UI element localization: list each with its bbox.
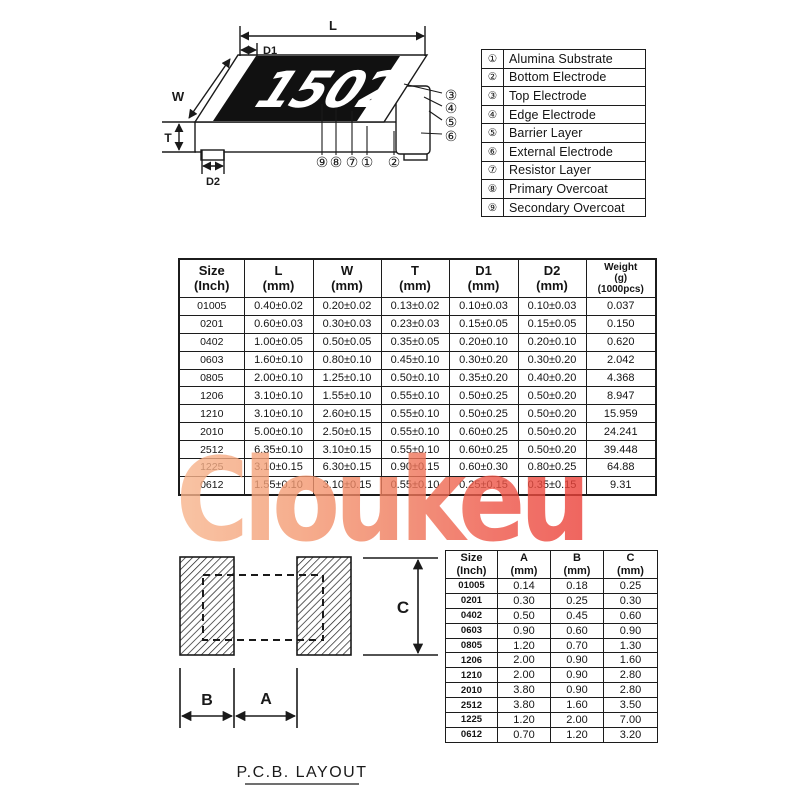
col-header-l: L(mm) (244, 259, 313, 298)
cell-d1: 0.15±0.05 (449, 315, 518, 333)
col-header-d1: D1(mm) (449, 259, 518, 298)
cell-t: 0.50±0.10 (381, 369, 449, 387)
legend-row: ⑦ Resistor Layer (482, 161, 646, 180)
cell-weight: 0.037 (586, 298, 656, 316)
cell-l: 5.00±0.10 (244, 423, 313, 441)
cell-size: 1225 (446, 713, 498, 728)
pad-table-row: 01005 0.14 0.18 0.25 (446, 579, 658, 594)
pad-table-row: 1206 2.00 0.90 1.60 (446, 653, 658, 668)
cell-size: 1210 (446, 668, 498, 683)
pcb-dim-label-c: C (397, 598, 409, 617)
legend-number: ⑦ (482, 161, 504, 180)
dimensions-table-row: 1225 3.10±0.15 6.30±0.15 0.90±0.15 0.60±… (179, 459, 656, 477)
legend-label: Secondary Overcoat (504, 198, 646, 217)
col-header-c: C(mm) (604, 551, 658, 579)
legend-label: Barrier Layer (504, 124, 646, 143)
cell-c: 0.25 (604, 579, 658, 594)
cell-a: 3.80 (498, 698, 551, 713)
cell-size: 0805 (179, 369, 244, 387)
cell-w: 0.80±0.10 (313, 351, 381, 369)
cell-size: 0201 (446, 593, 498, 608)
pad-table-row: 2010 3.80 0.90 2.80 (446, 683, 658, 698)
dimensions-table-row: 2010 5.00±0.10 2.50±0.15 0.55±0.10 0.60±… (179, 423, 656, 441)
pcb-dim-label-b: B (201, 692, 213, 709)
cell-b: 1.60 (551, 698, 604, 713)
cell-d1: 0.10±0.03 (449, 298, 518, 316)
pad-table-row: 1210 2.00 0.90 2.80 (446, 668, 658, 683)
cell-l: 1.55±0.10 (244, 476, 313, 494)
cell-t: 0.35±0.05 (381, 333, 449, 351)
cell-d2: 0.35±0.15 (518, 476, 586, 494)
cell-t: 0.90±0.15 (381, 459, 449, 477)
callout-5-barrier-layer: ⑤ (445, 114, 458, 130)
cell-weight: 8.947 (586, 387, 656, 405)
cell-d2: 0.40±0.20 (518, 369, 586, 387)
cell-d1: 0.30±0.20 (449, 351, 518, 369)
cell-b: 1.20 (551, 727, 604, 742)
cell-d2: 0.30±0.20 (518, 351, 586, 369)
cell-t: 0.55±0.10 (381, 405, 449, 423)
callout-7-resistor-layer: ⑦ (346, 154, 359, 170)
cell-c: 7.00 (604, 713, 658, 728)
cell-c: 2.80 (604, 668, 658, 683)
legend-row: ⑤ Barrier Layer (482, 124, 646, 143)
layer-legend-table: ① Alumina Substrate ② Bottom Electrode ③… (481, 49, 646, 217)
dimensions-table-row: 1210 3.10±0.10 2.60±0.15 0.55±0.10 0.50±… (179, 405, 656, 423)
cell-l: 1.60±0.10 (244, 351, 313, 369)
cell-w: 0.30±0.03 (313, 315, 381, 333)
chip-left-foot (201, 150, 224, 160)
cell-size: 2512 (179, 441, 244, 459)
cell-size: 0201 (179, 315, 244, 333)
cell-a: 0.30 (498, 593, 551, 608)
pad-table-header-row: Size(Inch) A(mm) B(mm) C(mm) (446, 551, 658, 579)
cell-l: 6.35±0.10 (244, 441, 313, 459)
cell-size: 2010 (446, 683, 498, 698)
cell-c: 3.20 (604, 727, 658, 742)
callout-9-secondary-overcoat: ⑨ (316, 154, 329, 170)
cell-size: 01005 (179, 298, 244, 316)
cell-l: 0.40±0.02 (244, 298, 313, 316)
cell-l: 2.00±0.10 (244, 369, 313, 387)
cell-l: 3.10±0.15 (244, 459, 313, 477)
cell-weight: 4.368 (586, 369, 656, 387)
dimensions-table-row: 0402 1.00±0.05 0.50±0.05 0.35±0.05 0.20±… (179, 333, 656, 351)
cell-t: 0.55±0.10 (381, 387, 449, 405)
chip-overcoat-face (213, 56, 400, 121)
callout-6-external-electrode: ⑥ (445, 128, 458, 144)
pcb-caption: P.C.B. LAYOUT (237, 764, 368, 781)
cell-c: 1.30 (604, 638, 658, 653)
cell-size: 2512 (446, 698, 498, 713)
cell-d2: 0.80±0.25 (518, 459, 586, 477)
pad-table-row: 0805 1.20 0.70 1.30 (446, 638, 658, 653)
legend-row: ① Alumina Substrate (482, 50, 646, 69)
dimensions-table-row: 0612 1.55±0.10 3.10±0.15 0.55±0.10 0.25±… (179, 476, 656, 494)
legend-number: ④ (482, 105, 504, 124)
cell-d1: 0.20±0.10 (449, 333, 518, 351)
legend-label: External Electrode (504, 142, 646, 161)
pcb-layout-diagram: C B A P.C.B. LAYOUT (180, 557, 438, 784)
cell-c: 3.50 (604, 698, 658, 713)
cell-a: 2.00 (498, 668, 551, 683)
dimensions-table-row: 01005 0.40±0.02 0.20±0.02 0.13±0.02 0.10… (179, 298, 656, 316)
col-header-size: Size(Inch) (446, 551, 498, 579)
legend-row: ⑥ External Electrode (482, 142, 646, 161)
cell-t: 0.55±0.10 (381, 441, 449, 459)
cell-t: 0.23±0.03 (381, 315, 449, 333)
callout-3-top-electrode: ③ (445, 87, 458, 103)
cell-b: 0.90 (551, 683, 604, 698)
cell-a: 2.00 (498, 653, 551, 668)
cell-a: 3.80 (498, 683, 551, 698)
pcb-footprint-outline (203, 575, 323, 640)
cell-a: 1.20 (498, 713, 551, 728)
dimensions-table-header-row: Size(Inch) L(mm) W(mm) T(mm) D1(mm) D2(m… (179, 259, 656, 298)
cell-l: 1.00±0.05 (244, 333, 313, 351)
legend-number: ⑧ (482, 180, 504, 199)
col-header-a: A(mm) (498, 551, 551, 579)
cell-d1: 0.60±0.25 (449, 423, 518, 441)
cell-weight: 24.241 (586, 423, 656, 441)
cell-l: 3.10±0.10 (244, 405, 313, 423)
cell-size: 1225 (179, 459, 244, 477)
cell-b: 0.18 (551, 579, 604, 594)
cell-size: 2010 (179, 423, 244, 441)
cell-d1: 0.60±0.25 (449, 441, 518, 459)
cell-l: 0.60±0.03 (244, 315, 313, 333)
cell-size: 1206 (446, 653, 498, 668)
col-header-t: T(mm) (381, 259, 449, 298)
dim-label-d2: D2 (206, 176, 220, 188)
legend-label: Edge Electrode (504, 105, 646, 124)
cell-c: 2.80 (604, 683, 658, 698)
cell-b: 0.60 (551, 623, 604, 638)
chip-top-face (195, 55, 427, 122)
cell-b: 2.00 (551, 713, 604, 728)
callout-1-alumina-substrate: ① (361, 154, 374, 170)
cell-size: 0402 (446, 608, 498, 623)
cell-w: 3.10±0.15 (313, 476, 381, 494)
dim-label-w: W (172, 89, 185, 104)
pcb-pad-left (180, 557, 234, 655)
chip-end-electrode (396, 86, 430, 154)
cell-a: 0.90 (498, 623, 551, 638)
pad-table-row: 0402 0.50 0.45 0.60 (446, 608, 658, 623)
cell-c: 0.60 (604, 608, 658, 623)
chip-body (195, 122, 428, 152)
cell-weight: 64.88 (586, 459, 656, 477)
cell-size: 1206 (179, 387, 244, 405)
cell-weight: 39.448 (586, 441, 656, 459)
callout-2-bottom-electrode: ② (388, 154, 401, 170)
legend-label: Top Electrode (504, 87, 646, 106)
cell-c: 0.90 (604, 623, 658, 638)
cell-d1: 0.60±0.30 (449, 459, 518, 477)
legend-label: Alumina Substrate (504, 50, 646, 69)
dim-label-l: L (329, 18, 337, 33)
legend-number: ⑥ (482, 142, 504, 161)
cell-b: 0.90 (551, 668, 604, 683)
cell-b: 0.90 (551, 653, 604, 668)
pad-table-row: 2512 3.80 1.60 3.50 (446, 698, 658, 713)
cell-c: 1.60 (604, 653, 658, 668)
legend-row: ② Bottom Electrode (482, 68, 646, 87)
cell-b: 0.45 (551, 608, 604, 623)
dimensions-table-row: 2512 6.35±0.10 3.10±0.15 0.55±0.10 0.60±… (179, 441, 656, 459)
cell-size: 0402 (179, 333, 244, 351)
pcb-dim-label-a: A (260, 691, 272, 708)
cell-t: 0.55±0.10 (381, 423, 449, 441)
col-header-size: Size(Inch) (179, 259, 244, 298)
cell-a: 0.70 (498, 727, 551, 742)
resistor-marking: 1502 (241, 61, 414, 119)
pad-table-row: 1225 1.20 2.00 7.00 (446, 713, 658, 728)
legend-label: Primary Overcoat (504, 180, 646, 199)
col-header-b: B(mm) (551, 551, 604, 579)
cell-l: 3.10±0.10 (244, 387, 313, 405)
legend-row: ⑨ Secondary Overcoat (482, 198, 646, 217)
legend-number: ① (482, 50, 504, 69)
cell-t: 0.13±0.02 (381, 298, 449, 316)
legend-number: ③ (482, 87, 504, 106)
pcb-pad-right (297, 557, 351, 655)
cell-weight: 15.959 (586, 405, 656, 423)
legend-label: Resistor Layer (504, 161, 646, 180)
cell-weight: 0.150 (586, 315, 656, 333)
cell-d2: 0.50±0.20 (518, 405, 586, 423)
cell-weight: 0.620 (586, 333, 656, 351)
cell-d2: 0.15±0.05 (518, 315, 586, 333)
dimensions-table: Size(Inch) L(mm) W(mm) T(mm) D1(mm) D2(m… (178, 258, 657, 496)
cell-size: 0805 (446, 638, 498, 653)
dimensions-table-row: 0805 2.00±0.10 1.25±0.10 0.50±0.10 0.35±… (179, 369, 656, 387)
cell-t: 0.55±0.10 (381, 476, 449, 494)
cell-w: 3.10±0.15 (313, 441, 381, 459)
pad-table-row: 0201 0.30 0.25 0.30 (446, 593, 658, 608)
cell-size: 0612 (179, 476, 244, 494)
legend-row: ③ Top Electrode (482, 87, 646, 106)
cell-a: 0.14 (498, 579, 551, 594)
resistor-construction-diagram: 1502 L D1 W T D2 ③ ④ ⑤ (162, 18, 457, 188)
cell-d1: 0.25±0.15 (449, 476, 518, 494)
cell-a: 0.50 (498, 608, 551, 623)
cell-c: 0.30 (604, 593, 658, 608)
legend-row: ④ Edge Electrode (482, 105, 646, 124)
cell-weight: 2.042 (586, 351, 656, 369)
cell-weight: 9.31 (586, 476, 656, 494)
cell-b: 0.25 (551, 593, 604, 608)
pad-dimensions-table: Size(Inch) A(mm) B(mm) C(mm) 01005 0.14 … (445, 550, 658, 743)
cell-w: 1.25±0.10 (313, 369, 381, 387)
cell-a: 1.20 (498, 638, 551, 653)
cell-w: 0.50±0.05 (313, 333, 381, 351)
cell-w: 1.55±0.10 (313, 387, 381, 405)
cell-size: 1210 (179, 405, 244, 423)
cell-d2: 0.50±0.20 (518, 423, 586, 441)
legend-row: ⑧ Primary Overcoat (482, 180, 646, 199)
dimensions-table-row: 1206 3.10±0.10 1.55±0.10 0.55±0.10 0.50±… (179, 387, 656, 405)
cell-w: 0.20±0.02 (313, 298, 381, 316)
dimensions-table-row: 0201 0.60±0.03 0.30±0.03 0.23±0.03 0.15±… (179, 315, 656, 333)
cell-w: 2.50±0.15 (313, 423, 381, 441)
cell-w: 6.30±0.15 (313, 459, 381, 477)
cell-d1: 0.35±0.20 (449, 369, 518, 387)
cell-w: 2.60±0.15 (313, 405, 381, 423)
cell-size: 0612 (446, 727, 498, 742)
cell-d2: 0.20±0.10 (518, 333, 586, 351)
cell-size: 0603 (179, 351, 244, 369)
col-header-weight: Weight(g)(1000pcs) (586, 259, 656, 298)
col-header-d2: D2(mm) (518, 259, 586, 298)
cell-d1: 0.50±0.25 (449, 387, 518, 405)
cell-t: 0.45±0.10 (381, 351, 449, 369)
dimensions-table-row: 0603 1.60±0.10 0.80±0.10 0.45±0.10 0.30±… (179, 351, 656, 369)
chip-right-foot (404, 150, 427, 160)
cell-b: 0.70 (551, 638, 604, 653)
dim-label-t: T (164, 131, 172, 145)
legend-number: ⑨ (482, 198, 504, 217)
dim-label-d1: D1 (263, 45, 277, 57)
cell-d1: 0.50±0.25 (449, 405, 518, 423)
callout-8-primary-overcoat: ⑧ (330, 154, 343, 170)
legend-label: Bottom Electrode (504, 68, 646, 87)
cell-size: 01005 (446, 579, 498, 594)
callout-4-edge-electrode: ④ (445, 100, 458, 116)
pad-table-row: 0603 0.90 0.60 0.90 (446, 623, 658, 638)
pad-table-row: 0612 0.70 1.20 3.20 (446, 727, 658, 742)
cell-d2: 0.50±0.20 (518, 441, 586, 459)
col-header-w: W(mm) (313, 259, 381, 298)
cell-d2: 0.50±0.20 (518, 387, 586, 405)
cell-size: 0603 (446, 623, 498, 638)
legend-number: ⑤ (482, 124, 504, 143)
cell-d2: 0.10±0.03 (518, 298, 586, 316)
legend-number: ② (482, 68, 504, 87)
